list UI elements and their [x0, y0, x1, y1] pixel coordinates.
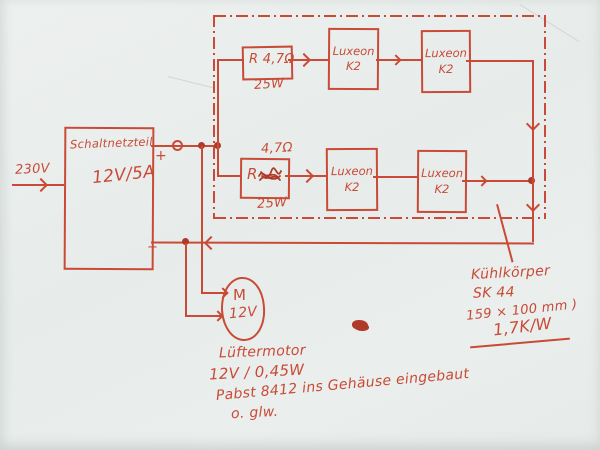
- ink-blob: [352, 320, 368, 330]
- mains-arrow-icon: [34, 178, 48, 192]
- paper-crease: [519, 4, 579, 42]
- led3-box: Luxeon K2: [326, 148, 378, 211]
- resistor1-power-label: 25W: [254, 76, 285, 93]
- current-arrow-icon: [526, 198, 540, 212]
- fan-note-name: Lüftermotor: [219, 342, 306, 361]
- plus-terminal-label: +: [155, 148, 167, 164]
- paper-crease: [168, 76, 215, 89]
- output-terminal-circle: [172, 140, 183, 151]
- led4-name: Luxeon: [421, 168, 463, 180]
- wire-led4-to-return: [462, 180, 534, 182]
- wire-string-feed-vertical: [217, 59, 219, 177]
- wire-led2-to-return: [466, 60, 534, 62]
- heatsink-note-type: SK 44: [473, 284, 515, 301]
- current-arrow-icon: [476, 175, 487, 186]
- heatsink-boundary-bottom: [214, 217, 546, 219]
- motor-voltage: 12V: [228, 304, 258, 322]
- fan-note-equivalent: o. glw.: [231, 404, 279, 422]
- psu-title: Schaltnetzteil: [70, 135, 153, 152]
- led2-box: Luxeon K2: [421, 30, 471, 93]
- led2-model: K2: [439, 63, 454, 75]
- led3-name: Luxeon: [331, 166, 373, 178]
- heatsink-boundary-right: [544, 15, 546, 219]
- heatsink-boundary-left: [213, 15, 215, 219]
- current-arrow-icon: [390, 54, 401, 65]
- current-arrow-icon: [526, 117, 540, 131]
- wire-led3-to-led4: [373, 176, 417, 178]
- led1-box: Luxeon K2: [328, 28, 379, 90]
- current-arrow-icon: [300, 169, 314, 183]
- heatsink-callout-line: [496, 204, 513, 262]
- current-arrow-icon: [297, 53, 311, 67]
- led3-model: K2: [345, 181, 360, 193]
- wire-motor-minus-vertical: [185, 243, 187, 317]
- wire-row1-feed: [217, 59, 244, 61]
- wire-psu-plus-output: [151, 145, 219, 147]
- resistor2-value-label: 4,7Ω: [261, 140, 294, 157]
- input-voltage-label: 230V: [15, 161, 51, 178]
- heatsink-note-title: Kühlkörper: [471, 263, 551, 283]
- fan-note-rating: 12V / 0,45W: [209, 361, 305, 384]
- led1-name: Luxeon: [333, 45, 375, 57]
- scribbled-out-text: [256, 164, 283, 188]
- wire-motor-plus-vertical: [201, 146, 203, 294]
- motor-symbol: M: [233, 286, 246, 304]
- current-arrow-icon: [204, 236, 218, 250]
- heatsink-underline-stroke: [470, 338, 570, 349]
- led4-model: K2: [434, 183, 449, 195]
- scanned-schematic-paper: 230V Schaltnetzteil 12V/5A + − R 4,7Ω 25…: [0, 0, 600, 450]
- wire-return-vertical: [532, 60, 534, 242]
- resistor2-power-label: 25W: [257, 195, 288, 212]
- heatsink-boundary-top: [214, 15, 546, 17]
- led4-box: Luxeon K2: [417, 150, 467, 213]
- led2-name: Luxeon: [425, 48, 467, 60]
- wire-row2-feed: [217, 175, 242, 177]
- led1-model: K2: [346, 61, 361, 73]
